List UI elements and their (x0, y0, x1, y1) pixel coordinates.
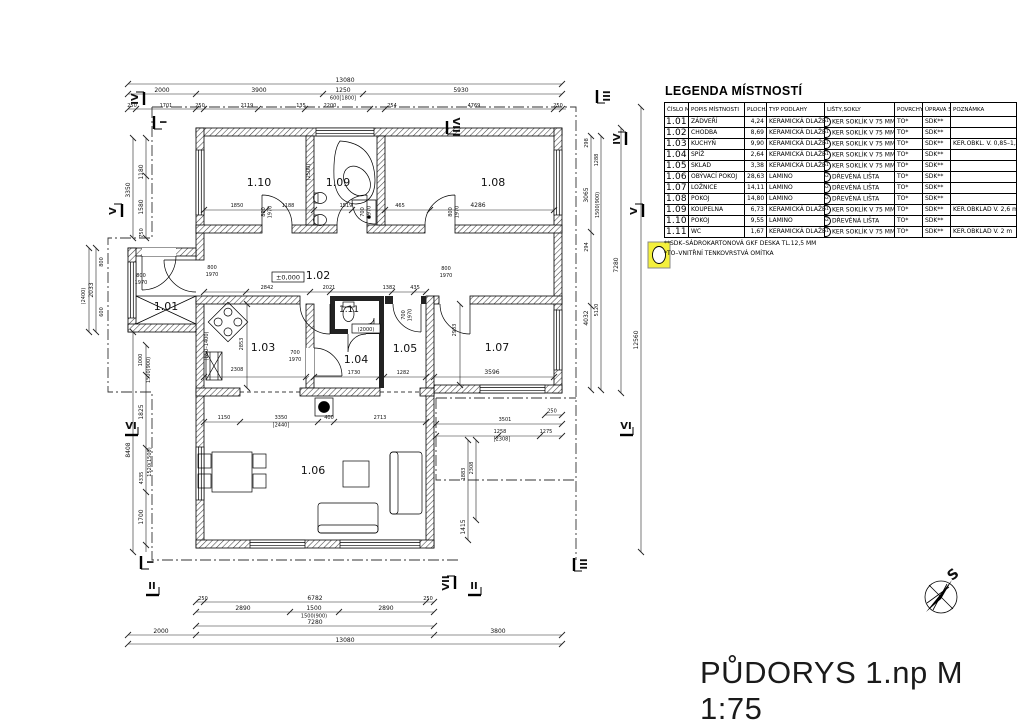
rooms-r110-label: 1.10 (247, 176, 272, 189)
dims-i_1150-label: 1150 (218, 415, 231, 421)
dims-r_4032-label: 4032 (583, 310, 590, 325)
skirting-text: KER SOKLÍK V 75 MM (832, 207, 895, 214)
room-number-cell: 1.02 (665, 128, 689, 139)
level_mark-label: ±0,000 (276, 274, 300, 282)
rooms-r109-label: 1.09 (326, 176, 351, 189)
room-area-cell: 3,38 (745, 161, 767, 172)
room-number-cell: 1.05 (665, 161, 689, 172)
dims-i_1188-label: 1188 (282, 203, 295, 209)
ceiling-cell: SDK** (923, 128, 951, 139)
dims-t3_2200-label: 2200 (324, 103, 337, 109)
note-cell (951, 117, 1017, 128)
ceiling-cell: SDK** (923, 172, 951, 183)
skirting-text: DŘEVĚNÁ LIŠTA (832, 196, 879, 203)
sections-iv-label: IV (612, 133, 623, 145)
dims-b_1500-label: 1500 (306, 605, 321, 612)
wall-surface-cell: TO* (895, 194, 923, 205)
entry-door-gap (142, 248, 176, 256)
dims-b_2000-label: 2000 (153, 628, 168, 635)
floor-type-cell: KERAMICKÁ DLAŽBA (767, 205, 825, 216)
wall-surface-cell: TO* (895, 117, 923, 128)
floor-type-cell: LAMINO (767, 183, 825, 194)
note-cell: KER.OBKL. V. 0,85–1,4 m (951, 139, 1017, 150)
skirting-cell: S2DŘEVĚNÁ LIŠTA (825, 183, 895, 194)
room-number-cell: 1.07 (665, 183, 689, 194)
floor-type-cell: KERAMICKÁ DLAŽBA (767, 139, 825, 150)
note-cell (951, 216, 1017, 227)
north-compass: S (925, 566, 962, 613)
dims-l_1500-label: 1500(900) (146, 357, 152, 383)
note-cell (951, 183, 1017, 194)
legend-header-0: ČÍSLO MÍSTN. (665, 103, 689, 117)
dims-rw_1883-label: 1883 (461, 468, 467, 481)
dims-i_1519-label: 1519 (340, 203, 353, 209)
room-number-cell: 1.11 (665, 227, 689, 238)
dims-i_2500-label: (2500) (306, 164, 312, 181)
window-living-west (196, 447, 204, 500)
room-area-cell: 4,24 (745, 117, 767, 128)
dims-rw_2308b-label: 2308 (469, 462, 475, 475)
floor-badge: S2 (825, 194, 832, 204)
wall-surface-cell: TO* (895, 172, 923, 183)
dims-l_1520-label: 1520(1500) (147, 447, 153, 476)
floor-type-cell: KERAMICKÁ DLAŽBA (767, 227, 825, 238)
legend-header-7: POZNÁMKA (951, 103, 1017, 117)
dims-i_1382-label: 1382 (383, 285, 396, 291)
floor-type-cell: KERAMICKÁ DLAŽBA (767, 150, 825, 161)
door_sizes-w700-label: 700 (401, 310, 407, 320)
skirting-text: KER SOKLÍK V 75 MM (832, 163, 895, 170)
dims-r_5120-label: 5120 (594, 304, 600, 317)
wall-surface-cell: TO* (895, 128, 923, 139)
dims-i_2853-label: 2853 (239, 338, 245, 351)
dims-t_3900-label: 3900 (251, 87, 266, 94)
skirting-cell: S2DŘEVĚNÁ LIŠTA (825, 216, 895, 227)
wood-stove (315, 398, 333, 416)
dims-i_3596-label: 3596 (484, 369, 499, 376)
north-arrow (926, 580, 952, 612)
dims-i_400-label: 400 (324, 415, 334, 421)
dims-b_6782-label: 6782 (307, 595, 322, 602)
dims-rw_1275-label: 1275 (540, 429, 553, 435)
door_sizes-h1970-label: 1970 (289, 357, 302, 363)
wc-basin (368, 318, 374, 324)
skirting-text: KER SOKLÍK V 75 MM (832, 152, 895, 159)
dims-i_2021-label: 2021 (323, 285, 336, 291)
dims-t3_254-label: 254 (387, 103, 397, 109)
skirting-text: KER SOKLÍK V 75 MM (832, 130, 895, 137)
floor-type-cell: LAMINO (767, 172, 825, 183)
window-room108-east (554, 150, 562, 215)
legend-table: ČÍSLO MÍSTN.POPIS MÍSTNOSTIPLOCHA (m²)TY… (664, 102, 1017, 238)
dims-r_1288-label: 1288 (594, 154, 600, 167)
dims-t3_250b-label: 250 (195, 103, 205, 109)
sections-i-label: I (144, 560, 154, 563)
dims-i_1730-label: 1730 (348, 370, 361, 376)
floor-badge: S1 (825, 117, 832, 127)
rooms-r106-label: 1.06 (301, 464, 326, 477)
rooms-r108-label: 1.08 (481, 176, 506, 189)
room-number-cell: 1.09 (665, 205, 689, 216)
skirting-cell: S2DŘEVĚNÁ LIŠTA (825, 194, 895, 205)
dims-i_b50-label: (B50–1400) (204, 331, 210, 360)
floor-badge: S2 (825, 172, 832, 182)
room-area-cell: 9,90 (745, 139, 767, 150)
note-cell (951, 172, 1017, 183)
floor-type-cell: KERAMICKÁ DLAŽBA (767, 117, 825, 128)
note-cell: KER.OBKLAD V. 2 m (951, 227, 1017, 238)
dims-l_1700-label: 1700 (138, 509, 145, 524)
dims-b_2890a-label: 2890 (235, 605, 250, 612)
sections-i-label: I (157, 120, 167, 123)
floor-type-cell: KERAMICKÁ DLAŽBA (767, 128, 825, 139)
dims-r_298-label: 298 (584, 138, 590, 148)
skirting-text: DŘEVĚNÁ LIŠTA (832, 174, 879, 181)
legend-note-1: **SDK–SÁDROKARTONOVÁ GKF DESKA TL.12,5 M… (664, 240, 1018, 248)
dims-r_12560-label: 12560 (633, 330, 640, 349)
room-number-cell: 1.10 (665, 216, 689, 227)
skirting-cell: S2DŘEVĚNÁ LIŠTA (825, 172, 895, 183)
door_sizes-h1970-label: 1970 (408, 309, 414, 322)
dims-t_600-label: 600[1800] (330, 96, 356, 102)
legend-header-row: ČÍSLO MÍSTN.POPIS MÍSTNOSTIPLOCHA (m²)TY… (665, 103, 1017, 117)
room-area-cell: 2,64 (745, 150, 767, 161)
rooms-r102-label: 1.02 (306, 269, 331, 282)
sections-ii-label: II (148, 581, 155, 592)
legend-header-2: PLOCHA (m²) (745, 103, 767, 117)
legend-row: 1.08POKOJ14,80LAMINOS2DŘEVĚNÁ LIŠTATO*SD… (665, 194, 1017, 205)
skirting-text: KER SOKLÍK V 75 MM (832, 229, 895, 236)
dims-top_total-label: 13080 (335, 77, 354, 84)
window-room110-west (196, 150, 204, 215)
sections-iii-label: III (600, 90, 611, 101)
floor-badge: S1 (825, 161, 832, 171)
floor-badge: S1 (825, 227, 832, 237)
floor-badge: S2 (825, 216, 832, 226)
dims-b_250b-label: 250 (423, 596, 433, 602)
wall-surface-cell: TO* (895, 150, 923, 161)
door-111 (348, 334, 366, 352)
room-number-cell: 1.04 (665, 150, 689, 161)
coffee-table (343, 461, 369, 487)
skirting-cell: S1KER SOKLÍK V 75 MM (825, 227, 895, 238)
sheet-title: PŮDORYS 1.np M 1:75 (700, 655, 1024, 723)
sections-vi-label: VI (125, 421, 136, 432)
legend-header-4: LIŠTY,SOKLY (825, 103, 895, 117)
dims-i_1282-label: 1282 (397, 370, 410, 376)
dims-l_1180-label: 1180 (138, 164, 145, 179)
legend-row: 1.01ZÁDVEŘÍ4,24KERAMICKÁ DLAŽBAS1KER SOK… (665, 117, 1017, 128)
dims-l_2400-label: (2400) (81, 288, 87, 305)
room-name-cell: POKOJ (689, 194, 745, 205)
sofa-right (390, 452, 422, 514)
door_sizes-h1970-label: 1970 (135, 280, 148, 286)
dims-i_435-label: 435 (410, 285, 420, 291)
dims-t3_4769-label: 4769 (468, 103, 481, 109)
dims-l_2033-label: 2033 (88, 282, 95, 297)
skirting-text: DŘEVĚNÁ LIŠTA (832, 218, 879, 225)
dims-t_5930-label: 5930 (453, 87, 468, 94)
floor-badge: S1 (825, 128, 832, 138)
ceiling-cell: SDK** (923, 117, 951, 128)
dims-l_4335-label: 4335 (139, 472, 145, 485)
room-name-cell: CHODBA (689, 128, 745, 139)
legend-header-5: POVRCHY STĚN (895, 103, 923, 117)
bathtub (334, 141, 376, 204)
floor-type-cell: LAMINO (767, 194, 825, 205)
windows (128, 128, 562, 548)
rooms-r103-label: 1.03 (251, 341, 276, 354)
sofa-bottom (318, 503, 378, 533)
drawing-sheet: 1.011.021.031.041.051.061.071.081.091.10… (0, 0, 1024, 723)
ceiling-cell: SDK** (923, 139, 951, 150)
room-area-cell: 28,63 (745, 172, 767, 183)
door_sizes-h1970-label: 1970 (440, 273, 453, 279)
door_sizes-w800-label: 800 (441, 266, 451, 272)
window-entry-west (128, 262, 136, 318)
room-name-cell: KOUPELNA (689, 205, 745, 216)
window-living-south-1 (250, 540, 305, 548)
dims-l_1825-label: 1825 (138, 404, 145, 419)
skirting-text: DŘEVĚNÁ LIŠTA (832, 185, 879, 192)
door_sizes-w800-label: 800 (136, 273, 146, 279)
dims-b_7280-label: 7280 (307, 619, 322, 626)
room-number-cell: 1.06 (665, 172, 689, 183)
wall-surface-cell: TO* (895, 205, 923, 216)
room-area-cell: 6,73 (745, 205, 767, 216)
skirting-cell: S1KER SOKLÍK V 75 MM (825, 161, 895, 172)
sections-v-label: V (108, 207, 119, 215)
room-name-cell: LOŽNICE (689, 183, 745, 194)
rooms-r101-label: 1.01 (154, 300, 179, 313)
floor-type-cell: KERAMICKÁ DLAŽBA (767, 161, 825, 172)
wall-surface-cell: TO* (895, 161, 923, 172)
note-cell: KER.OBKLAD V. 2,6 m (951, 205, 1017, 216)
skirting-cell: S1KER SOKLÍK V 75 MM (825, 117, 895, 128)
door-103 (300, 304, 330, 334)
door_sizes-w800-label: 800 (207, 265, 217, 271)
door_sizes-h1970-label: 1970 (455, 206, 461, 219)
ceiling-cell: SDK** (923, 150, 951, 161)
skirting-cell: S1KER SOKLÍK V 75 MM (825, 150, 895, 161)
door_sizes-w800-label: 800 (448, 207, 454, 217)
dims-rw_3501-label: 3501 (499, 417, 512, 423)
dining-table (198, 452, 266, 492)
ceiling-cell: SDK** (923, 205, 951, 216)
legend-row: 1.11WC1,67KERAMICKÁ DLAŽBAS1KER SOKLÍK V… (665, 227, 1017, 238)
dims-r_3065-label: 3065 (583, 187, 590, 202)
dims-rw_1258-label: 1258 (494, 429, 507, 435)
room-number-cell: 1.03 (665, 139, 689, 150)
legend-row: 1.03KUCHYŇ9,90KERAMICKÁ DLAŽBAS1KER SOKL… (665, 139, 1017, 150)
dims-i_2000-label: (2000) (358, 327, 375, 333)
door-104 (314, 348, 342, 376)
window-room107-east (554, 310, 562, 370)
ceiling-cell: SDK** (923, 227, 951, 238)
room-name-cell: OBÝVACÍ POKOJ (689, 172, 745, 183)
note-cell (951, 194, 1017, 205)
sections-iii-label: III (577, 558, 588, 569)
legend-row: 1.06OBÝVACÍ POKOJ28,63LAMINOS2DŘEVĚNÁ LI… (665, 172, 1017, 183)
note-cell (951, 161, 1017, 172)
legend-row: 1.10POKOJ9,55LAMINOS2DŘEVĚNÁ LIŠTATO*SDK… (665, 216, 1017, 227)
dims-i_465-label: 465 (395, 203, 405, 209)
legend-row: 1.05SKLAD3,38KERAMICKÁ DLAŽBAS1KER SOKLÍ… (665, 161, 1017, 172)
room-name-cell: POKOJ (689, 216, 745, 227)
legend-header-3: TYP PODLAHY (767, 103, 825, 117)
dims-i_2440-label: [2440] (273, 423, 290, 429)
dims-l_1000-label: 1000 (138, 354, 144, 367)
room-area-cell: 1,67 (745, 227, 767, 238)
sections-v-label: V (629, 207, 640, 215)
sections-iv-label: IV (130, 93, 141, 105)
dims-r_1500-label: 1500(900) (595, 192, 601, 218)
door_sizes-w800-label: 800 (261, 207, 267, 217)
sections-vi-label: VI (620, 421, 631, 432)
exterior-walls (128, 128, 562, 548)
door_sizes-h1970-label: 1970 (206, 272, 219, 278)
dims-l_800-label: 800 (99, 257, 105, 267)
dims-b_3800-label: 3800 (490, 628, 505, 635)
room-name-cell: KUCHYŇ (689, 139, 745, 150)
room-number-cell: 1.01 (665, 117, 689, 128)
skirting-cell: S1KER SOKLÍK V 75 MM (825, 205, 895, 216)
rooms-r107-label: 1.07 (485, 341, 510, 354)
room-area-cell: 14,80 (745, 194, 767, 205)
rooms-r105-label: 1.05 (393, 342, 418, 355)
window-room107-south (480, 385, 545, 393)
dims-i_2933-label: 2933 (452, 324, 458, 337)
door_sizes-w700-label: 700 (360, 207, 366, 217)
note-cell (951, 150, 1017, 161)
rooms-r111-label: 1.11 (339, 305, 359, 315)
floor-badge: S2 (825, 183, 832, 193)
sections-vii-label: VII (441, 575, 452, 590)
window-room109-north (316, 128, 374, 136)
floor-badge: S1 (825, 150, 832, 160)
ceiling-cell: SDK** (923, 216, 951, 227)
legend-note-2: *TO–VNITŘNÍ TENKOVRSTVÁ OMÍTKA (664, 250, 1018, 258)
dims-l_1580-label: 1580 (138, 199, 145, 214)
door_sizes-h1970-label: 1970 (367, 206, 373, 219)
door_sizes-w700-label: 700 (290, 350, 300, 356)
sections-ii-label: II (470, 581, 477, 592)
dims-i_3350-label: 3350 (275, 415, 288, 421)
room-name-cell: SPÍŽ (689, 150, 745, 161)
dims-b_2890b-label: 2890 (378, 605, 393, 612)
dims-l_600-label: 600 (99, 307, 105, 317)
skirting-cell: S1KER SOKLÍK V 75 MM (825, 139, 895, 150)
dims-r_294-label: 294 (584, 242, 590, 252)
dims-l_750-label: 750 (139, 228, 145, 238)
room-name-cell: SKLAD (689, 161, 745, 172)
legend-row: 1.09KOUPELNA6,73KERAMICKÁ DLAŽBAS1KER SO… (665, 205, 1017, 216)
dims-t3_135-label: 135 (296, 103, 306, 109)
ceiling-cell: SDK** (923, 183, 951, 194)
dims-t_1250-label: 1250 (335, 87, 350, 94)
wall-surface-cell: TO* (895, 183, 923, 194)
floor-badge: S1 (825, 139, 832, 149)
ceiling-cell: SDK** (923, 161, 951, 172)
dims-b_total-label: 13080 (335, 637, 354, 644)
note-cell (951, 128, 1017, 139)
legend-header-6: ÚPRAVA STROPU (923, 103, 951, 117)
skirting-text: KER SOKLÍK V 75 MM (832, 141, 895, 148)
room-area-cell: 8,69 (745, 128, 767, 139)
dims-l_8408-label: 8408 (125, 442, 132, 457)
dims-t_2000-label: 2000 (154, 87, 169, 94)
skirting-text: KER SOKLÍK V 75 MM (832, 119, 895, 126)
legend-row: 1.02CHODBA8,69KERAMICKÁ DLAŽBAS1KER SOKL… (665, 128, 1017, 139)
wall-surface-cell: TO* (895, 139, 923, 150)
wall-surface-cell: TO* (895, 227, 923, 238)
dims-b_250a-label: 250 (198, 596, 208, 602)
room-name-cell: ZÁDVEŘÍ (689, 117, 745, 128)
floor-type-cell: LAMINO (767, 216, 825, 227)
dims-t3_250c-label: 250 (553, 103, 563, 109)
dims-t3_1701-label: 1701 (160, 103, 173, 109)
room-area-cell: 14,11 (745, 183, 767, 194)
legend-header-1: POPIS MÍSTNOSTI (689, 103, 745, 117)
legend-row: 1.04SPÍŽ2,64KERAMICKÁ DLAŽBAS1KER SOKLÍK… (665, 150, 1017, 161)
dims-rw_250-label: 250 (547, 409, 557, 415)
floor-badge: S1 (825, 205, 832, 215)
dims-l_3350-label: 3350 (125, 182, 132, 197)
ceiling-cell: SDK** (923, 194, 951, 205)
kitchen-stove (208, 302, 248, 342)
dims-i_4286-label: 4286 (470, 202, 485, 209)
dims-i_2842-label: 2842 (261, 285, 274, 291)
dims-i_2713-label: 2713 (374, 415, 387, 421)
room-number-cell: 1.08 (665, 194, 689, 205)
compass-label: S (944, 566, 962, 585)
door-101-102 (164, 260, 196, 292)
legend-row: 1.07LOŽNICE14,11LAMINOS2DŘEVĚNÁ LIŠTATO*… (665, 183, 1017, 194)
legend-panel: LEGENDA MÍSTNOSTÍ ČÍSLO MÍSTN.POPIS MÍST… (664, 84, 1018, 258)
room-area-cell: 9,55 (745, 216, 767, 227)
dims-r_7280-label: 7280 (613, 257, 620, 272)
dims-i_2308k-label: 2308 (231, 367, 244, 373)
dims-t3_2119-label: 2119 (241, 103, 254, 109)
rooms-r104-label: 1.04 (344, 353, 369, 366)
wall-surface-cell: TO* (895, 216, 923, 227)
dims-rw_1415-label: 1415 (460, 519, 467, 534)
dims-rw_2308-label: [2308] (494, 437, 511, 443)
room-name-cell: WC (689, 227, 745, 238)
window-living-south-2 (340, 540, 420, 548)
legend-title: LEGENDA MÍSTNOSTÍ (665, 84, 1018, 98)
skirting-cell: S1KER SOKLÍK V 75 MM (825, 128, 895, 139)
door_sizes-h1970-label: 1970 (268, 206, 274, 219)
dims-i_1850-label: 1850 (231, 203, 244, 209)
